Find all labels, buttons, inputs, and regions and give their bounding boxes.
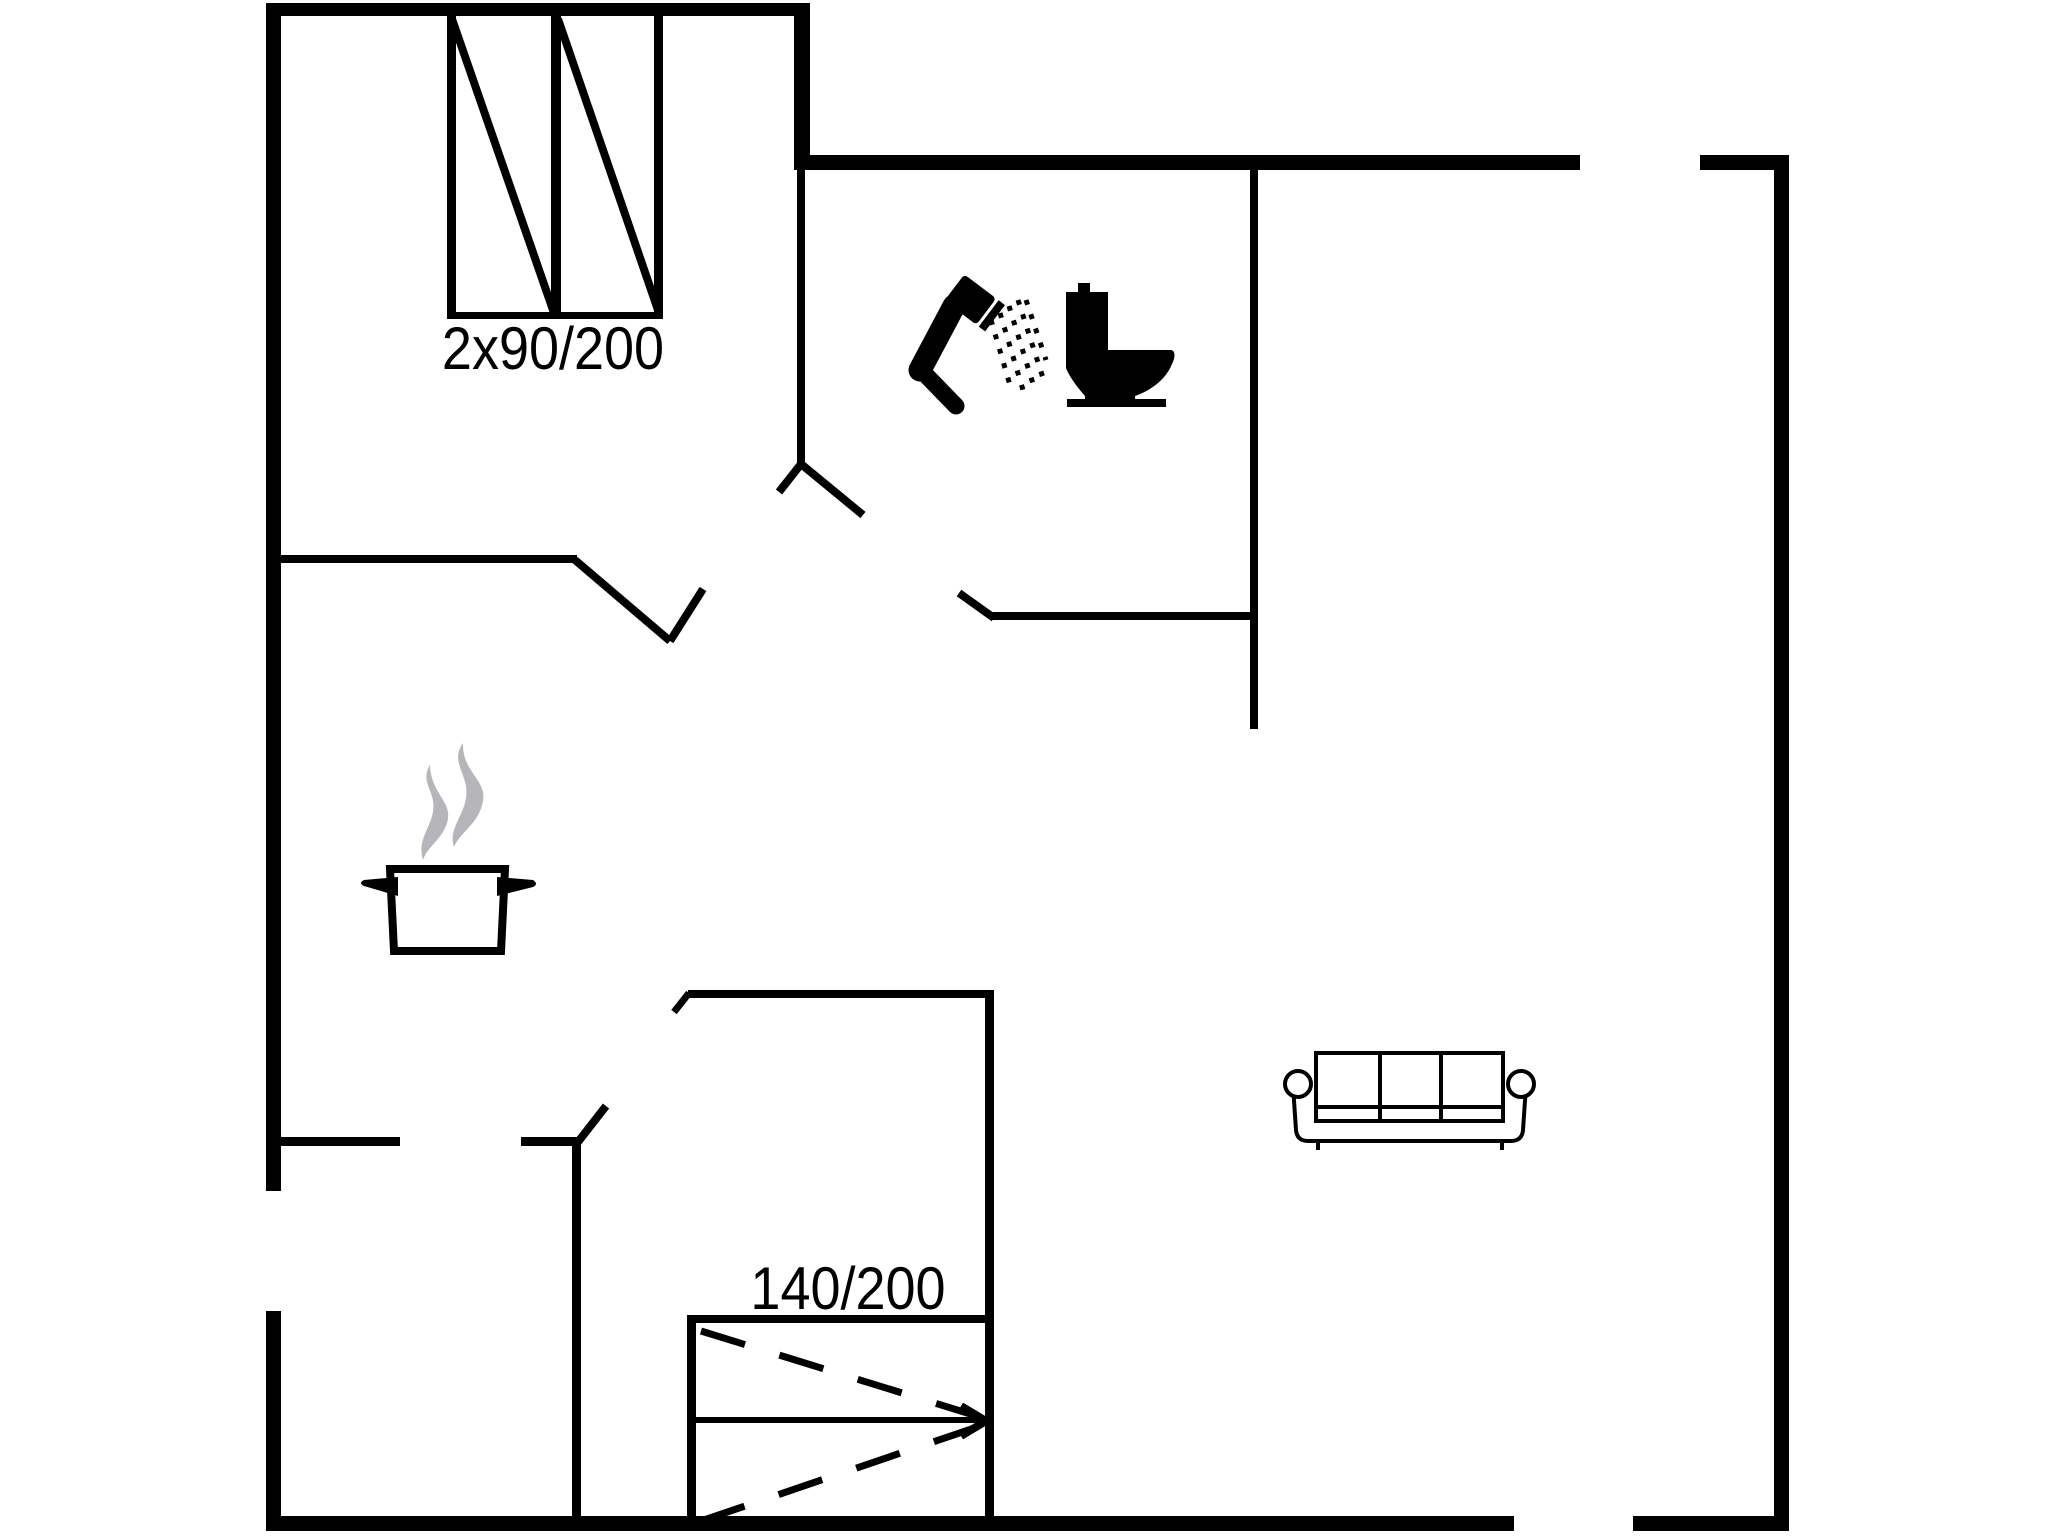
svg-text:140/200: 140/200	[750, 1255, 945, 1322]
svg-text:2x90/200: 2x90/200	[442, 315, 664, 382]
